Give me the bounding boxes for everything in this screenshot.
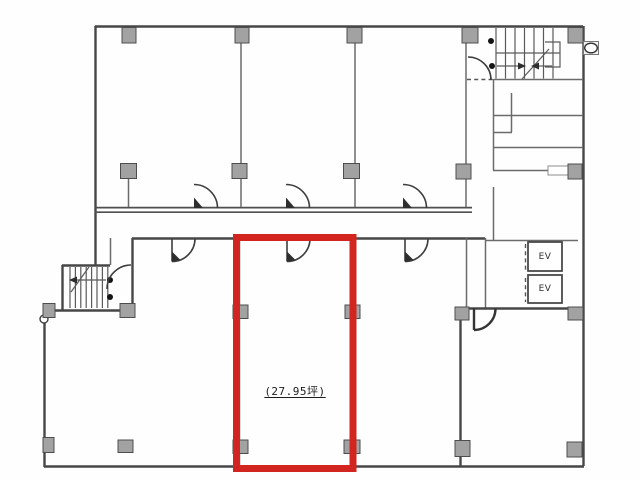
elevator-label-1: EV <box>528 242 562 271</box>
area-label: (27.95坪) <box>237 383 353 399</box>
floor-plan-page: (27.95坪) EV EV <box>0 0 640 480</box>
vent-oval <box>584 42 599 55</box>
staircase-top-right <box>468 28 560 80</box>
upper-room-doors <box>194 185 427 209</box>
outer-walls <box>44 26 584 467</box>
elevator-label-2: EV <box>528 275 562 303</box>
utility-zone-walls <box>467 79 583 241</box>
stairwell-enclosure-bottom-left <box>45 238 133 311</box>
stair-door-arc <box>468 57 491 80</box>
duct-shaft <box>493 93 512 133</box>
highlighted-unit-outline <box>237 238 354 469</box>
bottom-right-room-door <box>474 309 496 331</box>
corridor-walls <box>95 208 485 239</box>
stair-door-arc <box>107 265 131 289</box>
wall-opening <box>548 166 570 175</box>
lower-room-doors <box>172 239 496 331</box>
floor-plan-drawing <box>0 0 640 480</box>
